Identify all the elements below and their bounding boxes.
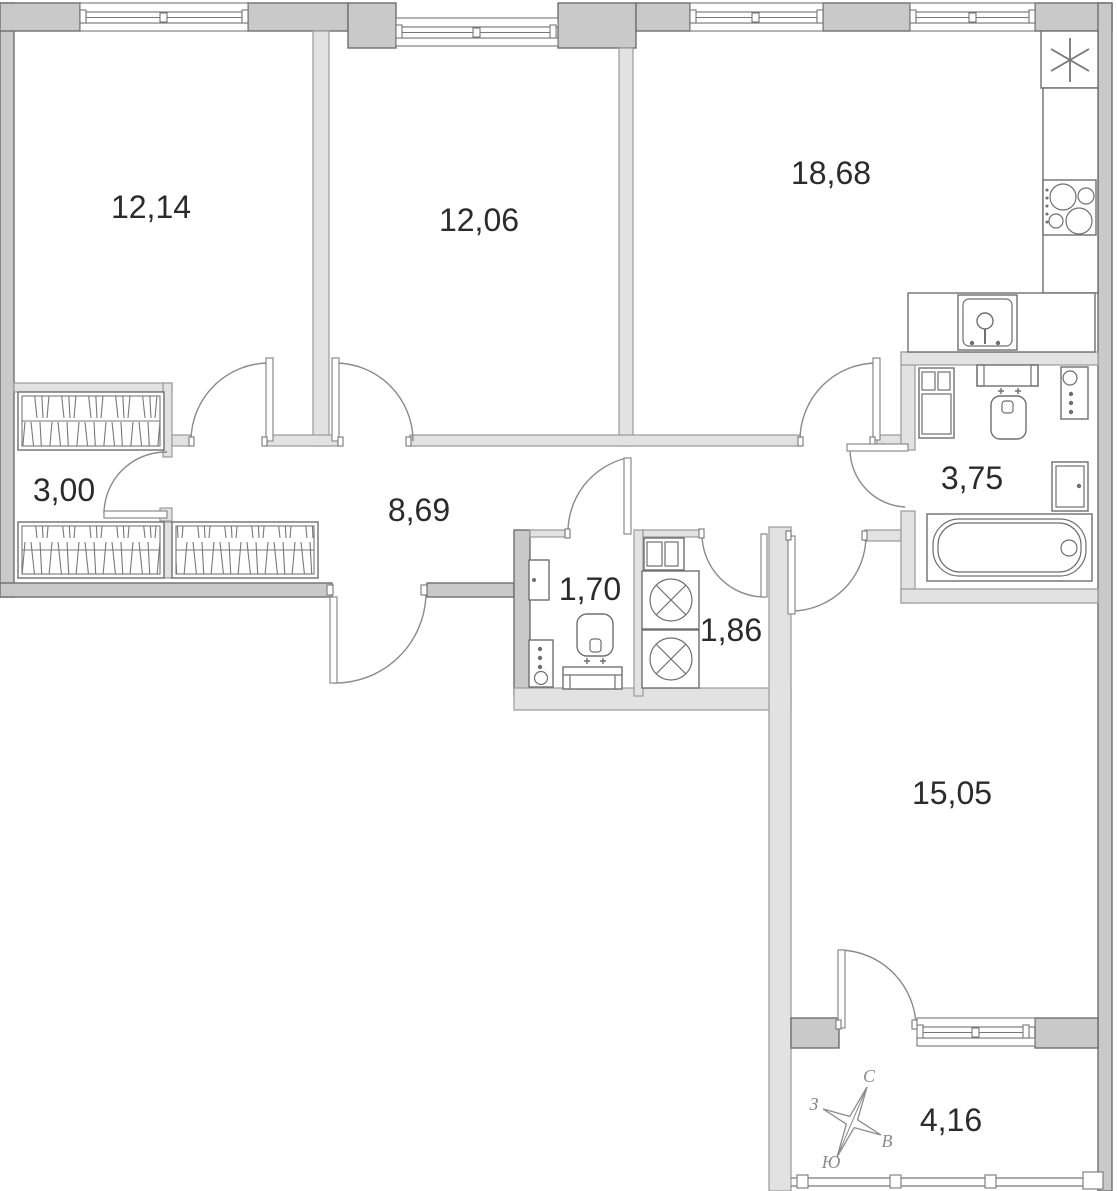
compass-north-label: С [863, 1066, 876, 1086]
door-entrance [327, 585, 427, 683]
window-kitchen-right [910, 3, 1035, 31]
vent-shaft-icon [1041, 31, 1098, 88]
room-label-hallway: 8,69 [388, 492, 450, 528]
wardrobe-shelf-icon-bottom-right [172, 522, 318, 578]
compass-rose-icon: С З В Ю [810, 1066, 893, 1172]
wardrobe-shelf-icon-bottom-left [18, 522, 164, 578]
door-bathroom [847, 444, 908, 507]
room-label-bedroom-3: 15,05 [912, 775, 992, 811]
door-kitchen [798, 358, 880, 446]
room-label-wc: 1,70 [559, 571, 621, 607]
stove-icon [1043, 180, 1096, 235]
bathtub-icon [927, 514, 1092, 581]
room-label-balcony: 4,16 [920, 1102, 982, 1138]
washing-machine-icon-1 [642, 571, 699, 629]
bathroom-washing-machine-icon [919, 368, 954, 438]
window-bedroom-1 [80, 3, 248, 31]
door-balcony [836, 950, 917, 1029]
kitchen-sink-icon [958, 295, 1017, 350]
compass-west-label: З [810, 1094, 819, 1114]
washing-machine-icon-2 [642, 630, 699, 688]
door-bedroom-3 [786, 531, 867, 614]
bathroom-towel-rail-icon [1061, 367, 1088, 419]
window-balcony [917, 1018, 1035, 1046]
wc-sink-icon [563, 614, 622, 689]
laundry-cabinet-icon [644, 538, 684, 570]
door-wardrobe [104, 452, 167, 518]
room-label-wardrobe: 3,00 [33, 472, 95, 508]
balcony-railing [791, 1172, 1103, 1189]
door-wc [565, 458, 631, 538]
room-label-laundry: 1,86 [700, 612, 762, 648]
bathroom-sink-icon [977, 365, 1038, 439]
kitchen-fixtures [908, 31, 1098, 352]
bathroom-cabinet-icon [1052, 462, 1088, 511]
room-label-kitchen-living: 18,68 [791, 155, 871, 191]
door-bedroom-1 [189, 358, 273, 446]
door-bedroom-2 [332, 358, 413, 446]
laundry-fixtures [642, 538, 699, 688]
floor-plan-page: С З В Ю 12,14 12,06 18,68 3,00 8,69 1,70… [0, 0, 1117, 1191]
wardrobe-shelf-icon-top [18, 392, 164, 450]
room-label-bedroom-2: 12,06 [439, 202, 519, 238]
window-bedroom-2 [396, 18, 558, 46]
room-label-bathroom: 3,75 [941, 460, 1003, 496]
floor-plan-svg: С З В Ю 12,14 12,06 18,68 3,00 8,69 1,70… [0, 0, 1117, 1191]
door-laundry [699, 529, 767, 597]
wc-mirror-icon [529, 560, 549, 600]
doors [104, 358, 917, 1029]
window-kitchen-left [690, 3, 823, 31]
compass-south-label: Ю [821, 1152, 841, 1172]
compass-east-label: В [882, 1131, 893, 1151]
room-label-bedroom-1: 12,14 [111, 189, 191, 225]
wc-towel-rail-icon [529, 640, 553, 687]
